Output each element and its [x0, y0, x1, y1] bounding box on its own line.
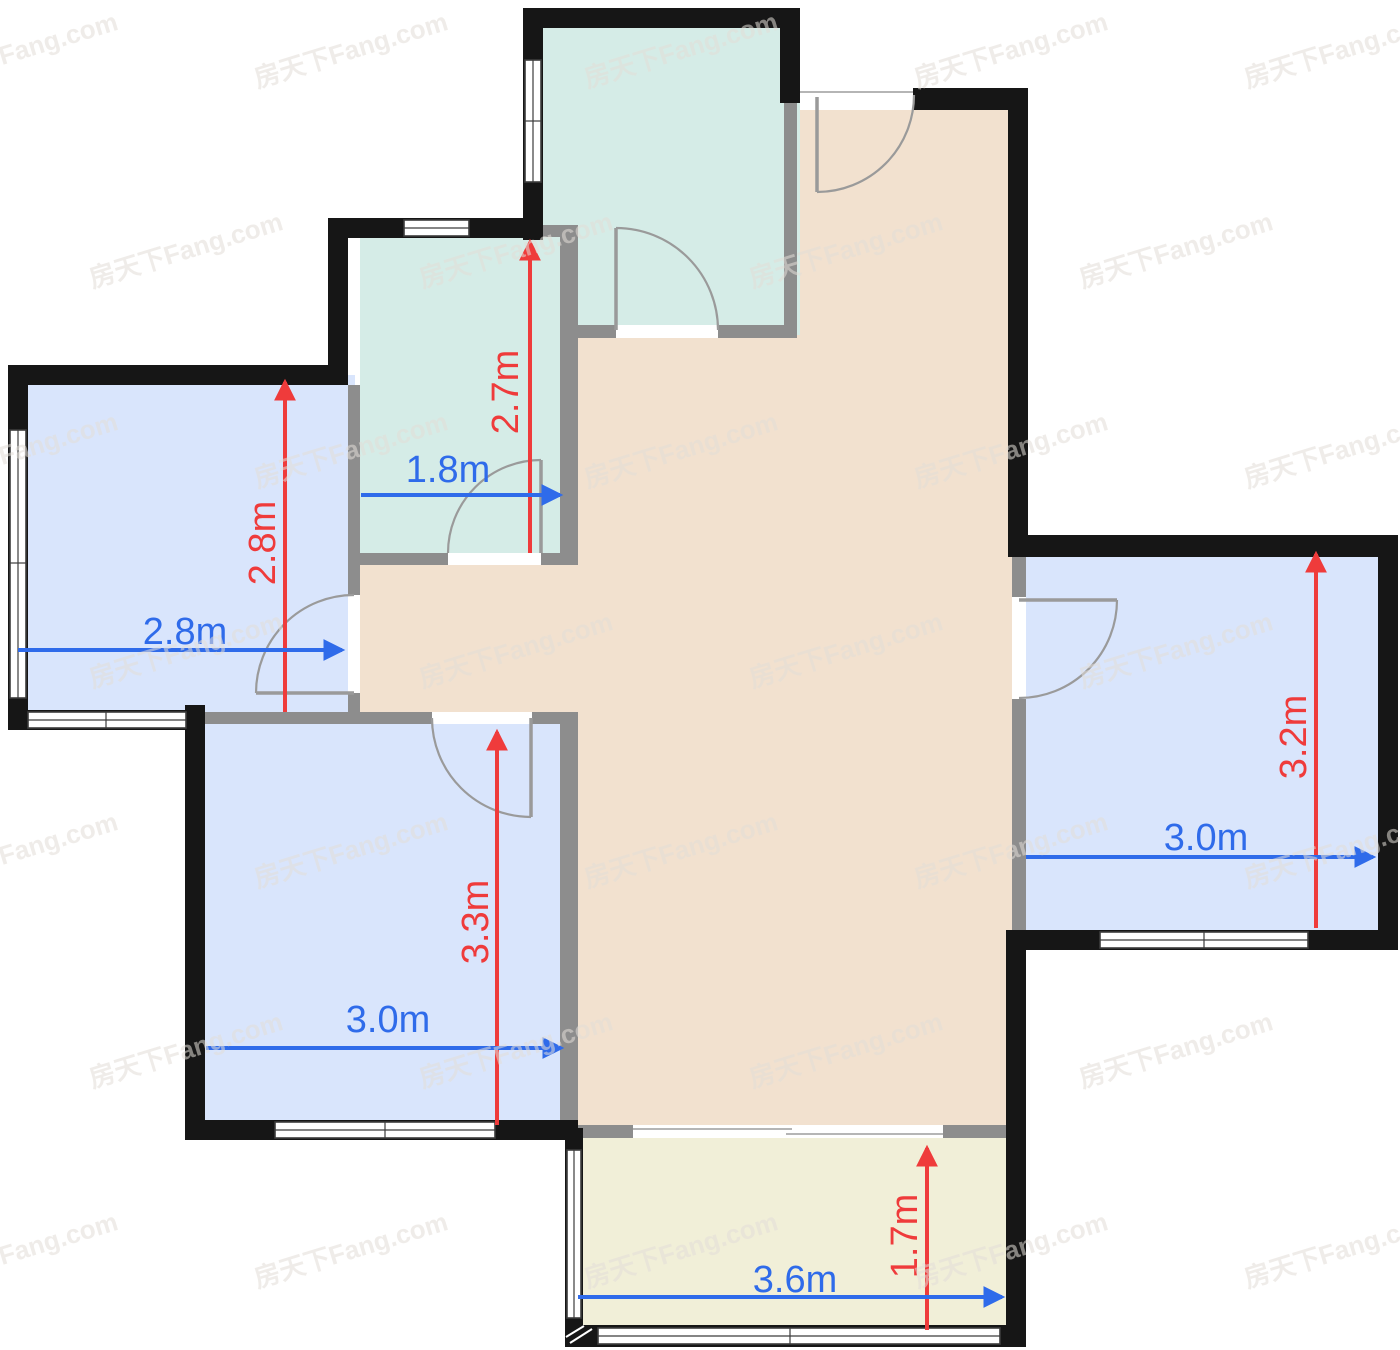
wall: [348, 385, 360, 595]
bathroom-top-door-opening: [616, 325, 718, 338]
floor-plan: 2.7m 2.8m 3.3m 3.2m 1.7m 1.8m 2.8m 3.0m …: [0, 0, 1400, 1350]
bedroom-left-floor: [20, 375, 355, 720]
wall: [523, 8, 800, 28]
wall: [1012, 699, 1026, 930]
bathroom-small-floor: [360, 230, 570, 560]
dim-label-bedroom-left-width: 2.8m: [143, 611, 227, 653]
wall: [1008, 535, 1398, 557]
bathroom-small-door-opening: [448, 553, 541, 565]
balcony-sliding-door-opening: [633, 1125, 943, 1138]
dim-label-balcony-width: 3.6m: [753, 1259, 837, 1301]
wall: [576, 1125, 633, 1138]
floor-plan-drawing: 2.7m 2.8m 3.3m 3.2m 1.7m 1.8m 2.8m 3.0m …: [0, 0, 1400, 1350]
wall: [784, 95, 797, 337]
bedroom-lower-left-floor: [195, 715, 565, 1130]
wall: [1378, 535, 1398, 950]
wall: [943, 1125, 1010, 1138]
wall: [1006, 930, 1026, 1347]
dim-label-bath-small-width: 1.8m: [406, 449, 490, 491]
wall: [541, 553, 568, 565]
wall: [718, 325, 797, 338]
dim-label-bedroom-right-width: 3.0m: [1164, 817, 1248, 859]
bedroom-lower-left-door-opening: [432, 712, 532, 724]
dim-label-bedroom-right-height: 3.2m: [1273, 695, 1315, 779]
wall: [560, 225, 578, 565]
wall: [352, 553, 448, 565]
wall: [780, 8, 800, 103]
wall: [185, 705, 205, 1140]
bedroom-right-door-opening: [1012, 597, 1026, 699]
bedroom-right-floor: [1018, 548, 1386, 938]
wall: [328, 218, 348, 385]
dim-label-balcony-height: 1.7m: [884, 1194, 926, 1278]
dim-label-bedroom-lower-left-width: 3.0m: [346, 999, 430, 1041]
dim-label-bedroom-lower-left-height: 3.3m: [455, 880, 497, 964]
dim-label-bath-small-height: 2.7m: [485, 350, 527, 434]
wall: [560, 712, 578, 1132]
dim-label-bedroom-left-height: 2.8m: [242, 501, 284, 585]
wall: [8, 365, 348, 385]
wall: [577, 325, 616, 338]
wall: [205, 712, 432, 724]
bedroom-left-door-opening: [348, 595, 360, 693]
wall: [1008, 88, 1028, 547]
balcony-floor: [575, 1130, 1011, 1335]
